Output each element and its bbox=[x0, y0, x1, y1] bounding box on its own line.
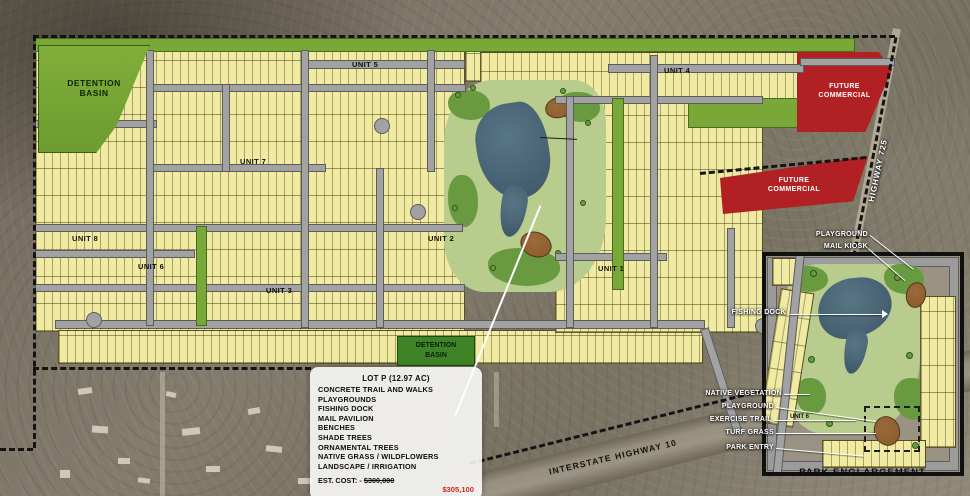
boundary-line-top bbox=[33, 35, 895, 38]
tree bbox=[585, 120, 591, 126]
detention-basin-label-line1: DETENTION bbox=[39, 78, 149, 88]
aerial-building bbox=[138, 477, 151, 484]
future-commercial-1-line1: FUTURE bbox=[797, 82, 892, 91]
road bbox=[427, 50, 435, 172]
future-commercial-2-line2: COMMERCIAL bbox=[720, 185, 868, 194]
cul-de-sac bbox=[86, 312, 102, 328]
tree bbox=[560, 88, 566, 94]
playground-top-callout: PLAYGROUND bbox=[810, 231, 868, 238]
road bbox=[35, 284, 465, 292]
leader-line bbox=[774, 420, 856, 421]
aerial-building bbox=[78, 387, 93, 395]
greenbelt bbox=[196, 226, 207, 326]
info-box-item: BENCHES bbox=[318, 423, 474, 433]
tree bbox=[455, 92, 461, 98]
info-box-item: PLAYGROUNDS bbox=[318, 395, 474, 405]
boundary-line-corner bbox=[0, 448, 33, 451]
aerial-building bbox=[166, 391, 177, 398]
road bbox=[35, 224, 463, 232]
inset-vegetation bbox=[796, 378, 826, 414]
info-box-item: FISHING DOCK bbox=[318, 404, 474, 414]
unit-7-label: UNIT 7 bbox=[240, 157, 266, 166]
tree bbox=[490, 265, 496, 271]
info-box-item: LANDSCAPE / IRRIGATION bbox=[318, 462, 474, 472]
mail-kiosk-callout: MAIL KIOSK bbox=[810, 243, 868, 250]
info-box: LOT P (12.97 AC) CONCRETE TRAIL AND WALK… bbox=[310, 367, 482, 496]
info-box-item: NATIVE GRASS / WILDFLOWERS bbox=[318, 452, 474, 462]
aerial-building bbox=[266, 445, 283, 453]
tree bbox=[912, 442, 919, 449]
road bbox=[146, 50, 154, 326]
unit-5-label: UNIT 5 bbox=[352, 60, 378, 69]
aerial-road bbox=[494, 372, 499, 427]
road bbox=[301, 50, 309, 328]
unit-4-label: UNIT 4 bbox=[664, 66, 690, 75]
unit-6-label: UNIT 6 bbox=[138, 262, 164, 271]
tree bbox=[452, 205, 458, 211]
unit-8-label: UNIT 8 bbox=[72, 234, 98, 243]
est-cost-original: $300,000 bbox=[364, 476, 394, 485]
arrow-icon bbox=[882, 310, 888, 318]
cul-de-sac bbox=[410, 204, 426, 220]
playground-left-callout: PLAYGROUND bbox=[712, 403, 774, 410]
aerial-building bbox=[248, 407, 261, 415]
est-cost-label: EST. COST: - bbox=[318, 476, 362, 485]
boundary-line-bottom bbox=[33, 367, 311, 370]
site-plan-map: DETENTION BASIN DETENTION BASIN FUTURE C… bbox=[0, 0, 970, 496]
unit-1-label: UNIT 1 bbox=[598, 264, 624, 273]
info-box-item: ORNAMENTAL TREES bbox=[318, 443, 474, 453]
unit-3-label: UNIT 3 bbox=[266, 286, 292, 295]
detention-basin-2-line1: DETENTION bbox=[398, 341, 474, 351]
boundary-line-left bbox=[33, 35, 36, 448]
greenbelt bbox=[612, 98, 624, 290]
info-box-item: MAIL PAVILION bbox=[318, 414, 474, 424]
park-vegetation bbox=[448, 175, 478, 227]
park-enlargement-inset: UNIT 6 bbox=[762, 252, 964, 476]
exercise-trail-callout: EXERCISE TRAIL bbox=[706, 416, 772, 423]
road bbox=[35, 250, 195, 258]
tree bbox=[580, 200, 586, 206]
native-vegetation-callout: NATIVE VEGETATION bbox=[700, 390, 782, 397]
turf-grass-callout: TURF GRASS bbox=[716, 429, 774, 436]
park-entry-callout: PARK ENTRY bbox=[716, 444, 774, 451]
aerial-building bbox=[182, 427, 201, 436]
detention-basin-2-line2: BASIN bbox=[398, 351, 474, 361]
road bbox=[376, 168, 384, 328]
tree bbox=[808, 356, 815, 363]
road bbox=[650, 55, 658, 328]
road bbox=[555, 96, 763, 104]
cul-de-sac bbox=[374, 118, 390, 134]
inset-lots-right bbox=[920, 296, 956, 448]
tree bbox=[810, 270, 817, 277]
leader-line bbox=[784, 394, 810, 395]
unit-2-label: UNIT 2 bbox=[428, 234, 454, 243]
detention-basin-box: DETENTION BASIN bbox=[397, 336, 475, 366]
tree bbox=[470, 85, 476, 91]
info-box-item: CONCRETE TRAIL AND WALKS bbox=[318, 385, 474, 395]
future-commercial-1-line2: COMMERCIAL bbox=[797, 91, 892, 100]
road bbox=[305, 60, 465, 69]
road bbox=[150, 164, 326, 172]
future-commercial-2-line1: FUTURE bbox=[720, 176, 868, 185]
aerial-building bbox=[118, 458, 130, 464]
aerial-road bbox=[160, 372, 165, 496]
road bbox=[222, 84, 230, 172]
greenbelt-top bbox=[35, 38, 855, 52]
road bbox=[800, 58, 895, 66]
tree bbox=[826, 420, 833, 427]
leader-line bbox=[790, 314, 884, 315]
park-enlargement-title: PARK ENGLARGEMENT bbox=[785, 467, 940, 478]
aerial-building bbox=[206, 466, 220, 472]
tree bbox=[906, 352, 913, 359]
info-box-item: SHADE TREES bbox=[318, 433, 474, 443]
est-cost-revised: $305,100 bbox=[318, 485, 474, 494]
road bbox=[566, 96, 574, 328]
fishing-dock-callout: FISHING DOCK bbox=[726, 309, 786, 316]
residential-lots-bottom-row bbox=[58, 330, 703, 364]
leader-line bbox=[776, 433, 876, 434]
aerial-building bbox=[60, 470, 70, 478]
info-box-title: LOT P (12.97 AC) bbox=[318, 374, 474, 383]
aerial-building bbox=[92, 425, 108, 433]
road bbox=[608, 64, 804, 73]
